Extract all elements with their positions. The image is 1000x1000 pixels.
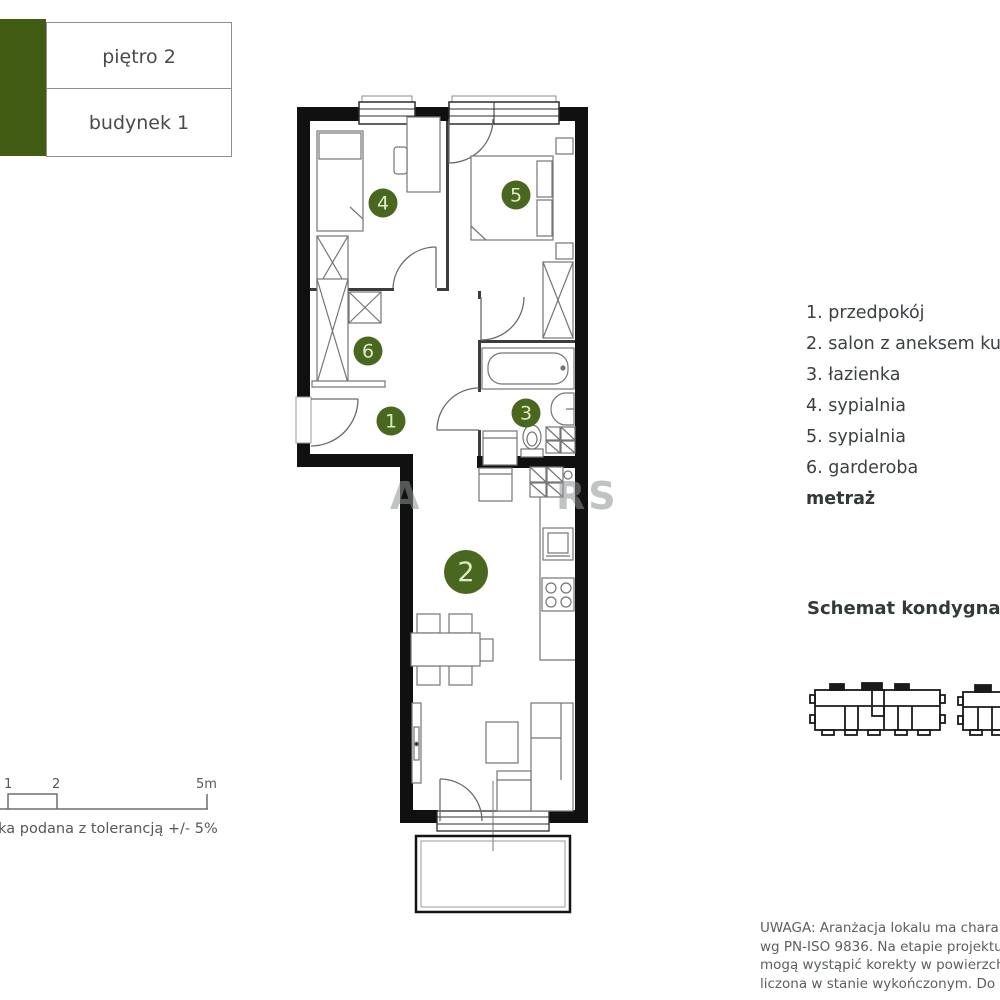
door-room4-icon [393, 247, 436, 288]
entrance-niche [296, 397, 311, 443]
washing-machine-icon [483, 431, 517, 465]
wardrobe-icon [312, 279, 385, 387]
legend-item-1: 1. przedpokój [806, 303, 1000, 334]
oven-icon [543, 528, 573, 560]
scale-tick-2: 2 [52, 777, 60, 792]
watermark-fragment: RS [556, 474, 619, 518]
scale-tick-5m: 5m [196, 777, 217, 792]
dining-table-icon [411, 614, 493, 685]
room-badge-5: 5 [502, 181, 531, 210]
coffee-table-icon [486, 722, 518, 763]
disclaimer-line: mogą wystąpić korekty w powierzchni lok [760, 956, 1000, 975]
toilet-icon [521, 425, 543, 457]
shaft-icon [546, 427, 575, 453]
room-badge-4: 4 [369, 189, 398, 218]
watermark-fragment: A [390, 474, 422, 518]
tv-icon [412, 703, 421, 783]
door-entrance-icon [311, 399, 358, 446]
building-schematic-partial-icon [958, 685, 1000, 735]
sink-icon [551, 393, 574, 425]
floor-label-box: piętro 2 [46, 22, 232, 91]
room-legend: 1. przedpokój 2. salon z aneksem kuch 3.… [806, 303, 1000, 520]
stove-icon [542, 578, 574, 611]
wardrobe-icon [543, 262, 573, 338]
bed-single-icon [317, 131, 363, 231]
room-badge-2: 2 [444, 550, 488, 594]
desk-icon [394, 117, 440, 192]
metraz-label: metraż [806, 489, 1000, 520]
floor-label: piętro 2 [102, 46, 176, 68]
floor-plan-page: 1 2 5m [0, 0, 1000, 1000]
disclaimer-line: UWAGA: Aranżacja lokalu ma charakter p [760, 919, 1000, 938]
legend-item-4: 4. sypialnia [806, 396, 1000, 427]
legend-item-3: 3. łazienka [806, 365, 1000, 396]
bathtub-icon [482, 348, 574, 389]
building-schematic-icon [810, 683, 945, 735]
disclaimer-text: UWAGA: Aranżacja lokalu ma charakter p w… [760, 919, 1000, 993]
disclaimer-line: wg PN-ISO 9836. Na etapie projektu wyko [760, 938, 1000, 957]
brand-color-block [0, 19, 46, 156]
scale-bar: 1 2 5m [0, 777, 217, 809]
door-room5-icon [481, 297, 524, 340]
room-badge-6: 6 [354, 337, 383, 366]
legend-item-5: 5. sypialnia [806, 427, 1000, 458]
disclaimer-line: liczona w stanie wykończonym. Do oblicze [760, 975, 1000, 994]
room-badge-3: 3 [512, 399, 541, 428]
door-bathroom-icon [437, 388, 479, 430]
tolerance-note: łka podana z tolerancją +/- 5% [0, 821, 218, 837]
room-badge-1: 1 [377, 407, 406, 436]
floor-plan [296, 96, 588, 912]
schematic-title: Schemat kondygnacji [807, 598, 1000, 619]
legend-item-2: 2. salon z aneksem kuch [806, 334, 1000, 365]
building-label-box: budynek 1 [46, 88, 232, 157]
window-room5-icon [449, 96, 559, 124]
scale-tick-1: 1 [4, 777, 12, 792]
kitchen-cabinet-icon [479, 468, 512, 501]
building-label: budynek 1 [89, 112, 189, 134]
legend-item-6: 6. garderoba [806, 458, 1000, 489]
